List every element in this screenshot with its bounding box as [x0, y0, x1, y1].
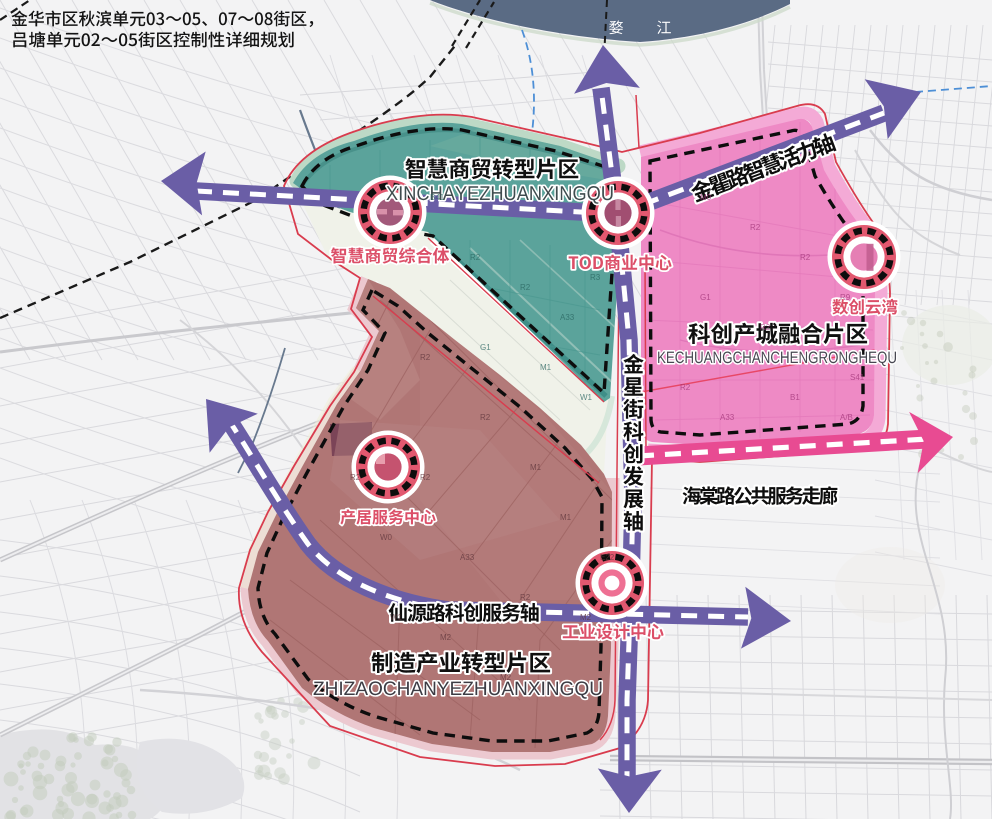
svg-text:R2: R2 — [350, 473, 361, 482]
svg-text:R3: R3 — [590, 273, 601, 282]
svg-text:M1: M1 — [560, 513, 572, 522]
svg-text:R2: R2 — [750, 223, 761, 232]
svg-text:R2: R2 — [520, 283, 531, 292]
svg-text:G1: G1 — [480, 343, 491, 352]
svg-text:W1: W1 — [390, 613, 403, 622]
svg-text:R2: R2 — [480, 413, 491, 422]
svg-text:R2: R2 — [420, 473, 431, 482]
svg-text:A33: A33 — [560, 313, 575, 322]
svg-text:R2: R2 — [470, 253, 481, 262]
svg-text:G1: G1 — [700, 293, 711, 302]
svg-text:R2: R2 — [420, 353, 431, 362]
svg-text:A33: A33 — [460, 553, 475, 562]
svg-text:W0: W0 — [380, 533, 393, 542]
svg-text:B1: B1 — [790, 393, 800, 402]
svg-text:M0: M0 — [700, 193, 712, 202]
svg-text:M2: M2 — [440, 633, 452, 642]
svg-text:A33: A33 — [720, 413, 735, 422]
svg-text:E22: E22 — [600, 553, 615, 562]
svg-text:R2: R2 — [800, 253, 811, 262]
svg-text:B41: B41 — [430, 193, 445, 202]
svg-text:M2: M2 — [500, 673, 512, 682]
svg-text:R9: R9 — [840, 293, 851, 302]
svg-text:R2: R2 — [520, 593, 531, 602]
svg-text:R2: R2 — [760, 323, 771, 332]
svg-text:R2: R2 — [680, 383, 691, 392]
svg-text:M1: M1 — [540, 363, 552, 372]
svg-text:A/B: A/B — [840, 413, 853, 422]
svg-text:M1: M1 — [530, 463, 542, 472]
svg-text:W1: W1 — [580, 393, 593, 402]
svg-text:M2: M2 — [580, 613, 592, 622]
svg-text:S41: S41 — [850, 373, 865, 382]
